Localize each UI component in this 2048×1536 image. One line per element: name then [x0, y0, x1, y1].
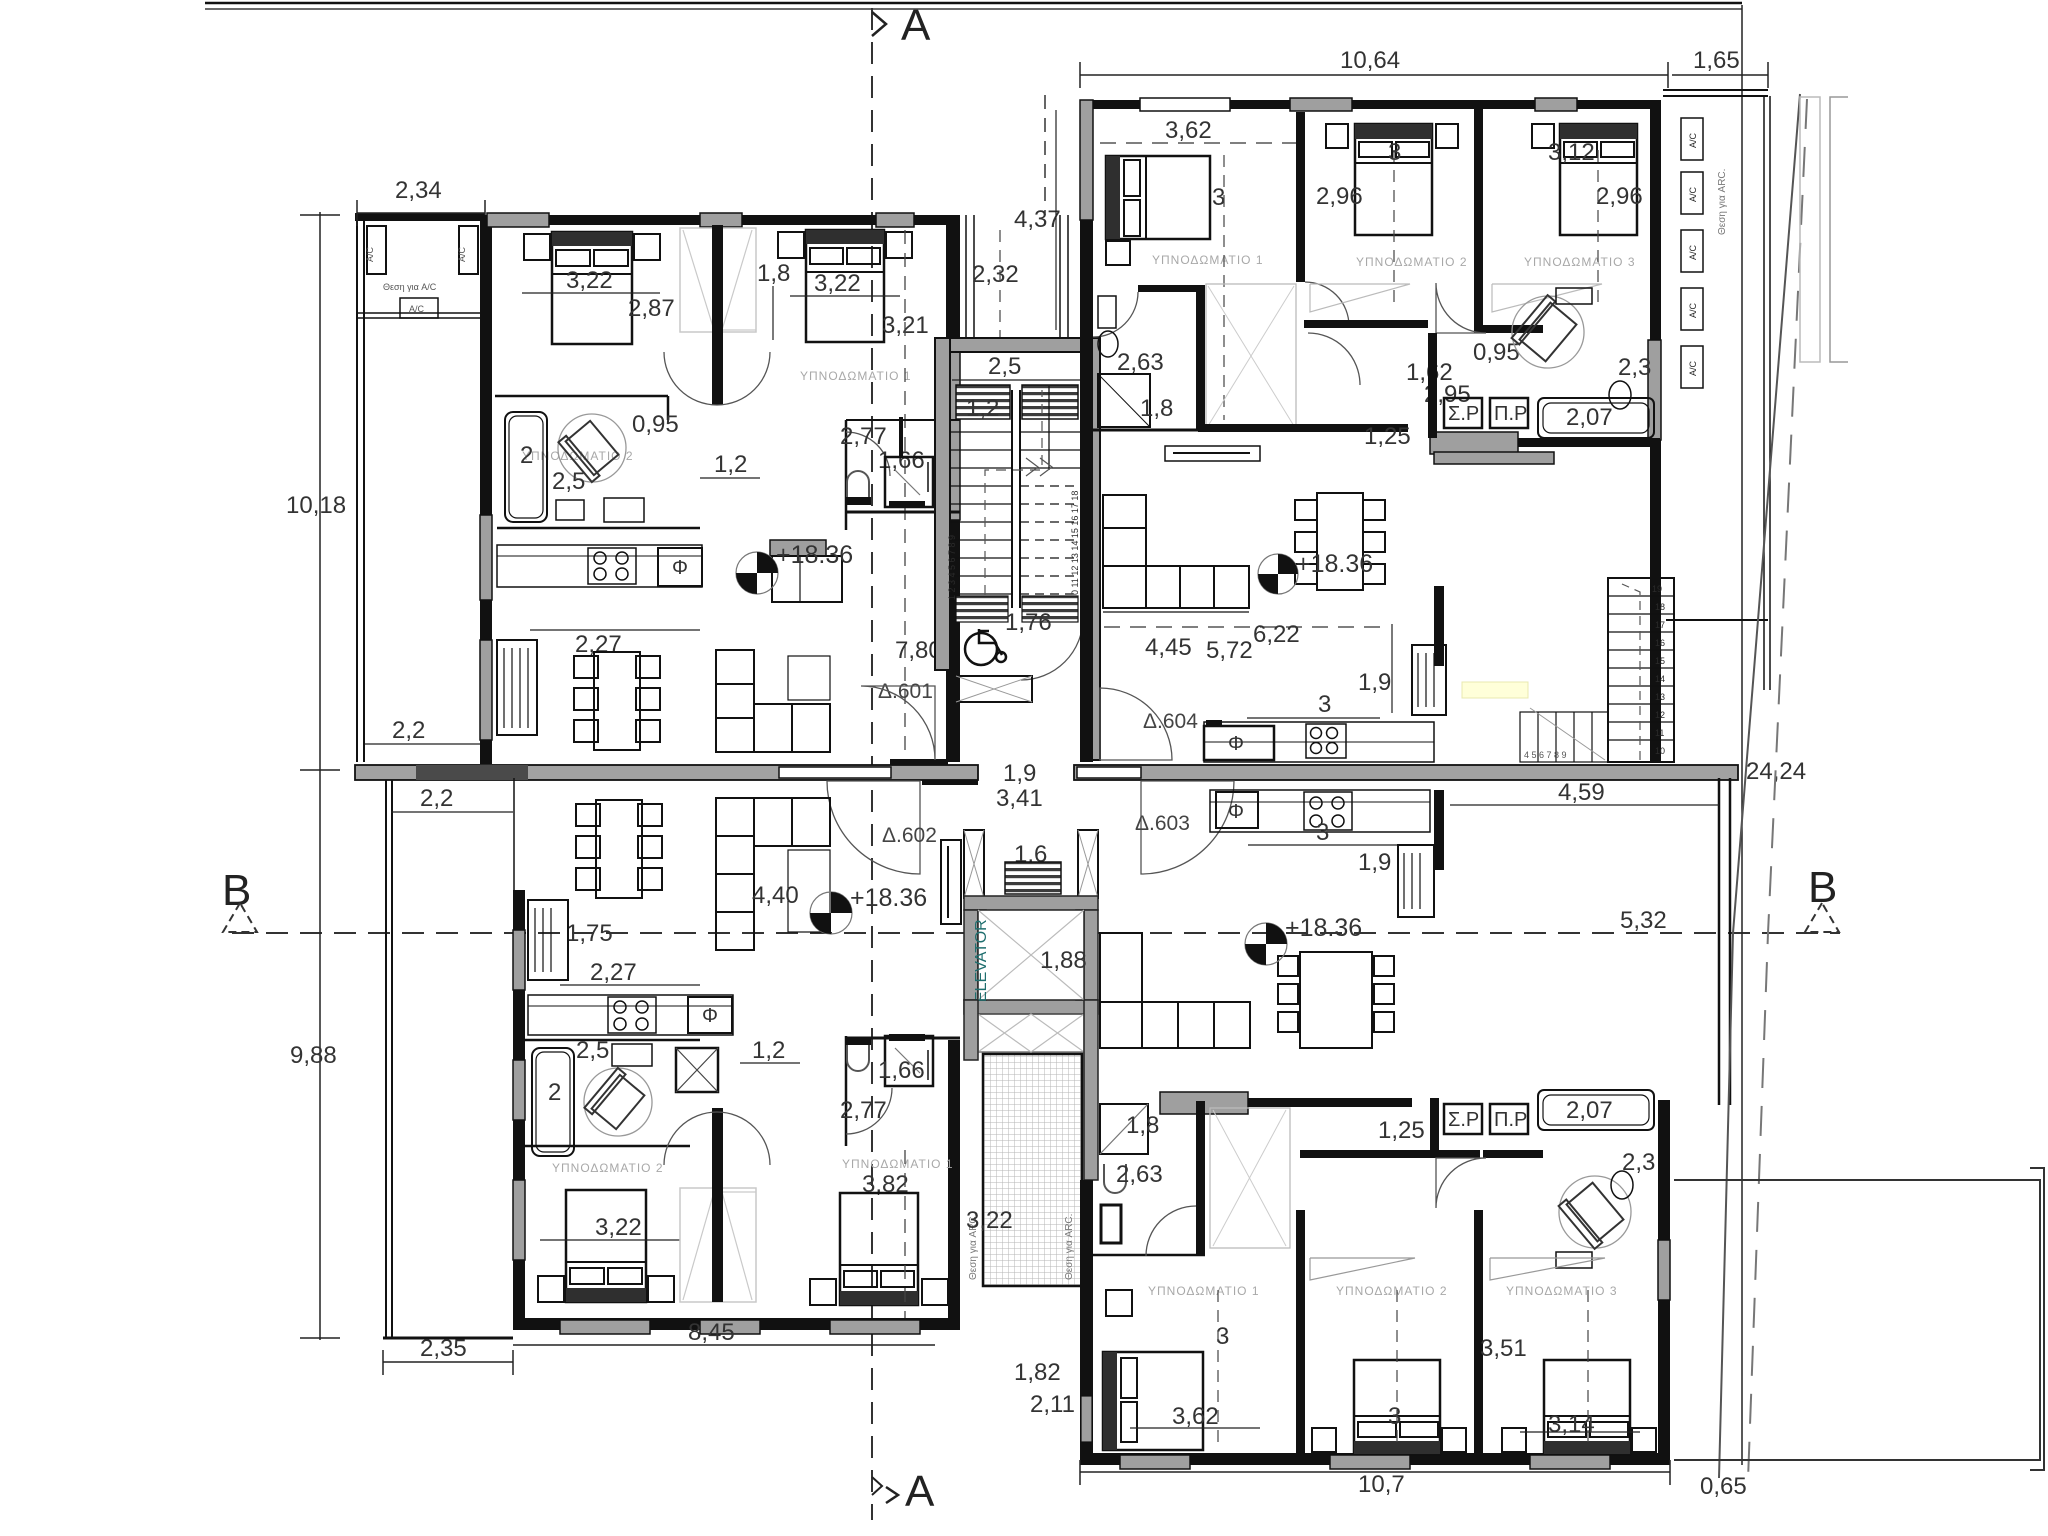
svg-text:3: 3	[1316, 819, 1329, 846]
svg-text:2,96: 2,96	[1596, 183, 1643, 210]
svg-text:+18.36: +18.36	[1296, 550, 1373, 578]
svg-text:ΥΠΝΟΔΩΜΑΤΙΟ 3: ΥΠΝΟΔΩΜΑΤΙΟ 3	[1506, 1284, 1618, 1298]
svg-text:2,11: 2,11	[1030, 1391, 1075, 1418]
svg-text:ΥΠΝΟΔΩΜΑΤΙΟ 2: ΥΠΝΟΔΩΜΑΤΙΟ 2	[1356, 255, 1468, 269]
svg-text:+18.36: +18.36	[850, 884, 927, 912]
svg-text:3,41: 3,41	[996, 785, 1043, 812]
svg-text:2,63: 2,63	[1116, 1161, 1163, 1188]
svg-text:4,59: 4,59	[1558, 779, 1605, 806]
svg-text:Θεση για A/C: Θεση για A/C	[383, 282, 437, 292]
svg-text:Δ.603: Δ.603	[1135, 812, 1190, 835]
svg-text:ΥΠΝΟΔΩΜΑΤΙΟ 2: ΥΠΝΟΔΩΜΑΤΙΟ 2	[552, 1161, 664, 1175]
svg-text:ΥΠΝΟΔΩΜΑΤΙΟ 3: ΥΠΝΟΔΩΜΑΤΙΟ 3	[1524, 255, 1636, 269]
svg-text:2,35: 2,35	[420, 1335, 467, 1362]
svg-text:2,96: 2,96	[1316, 183, 1363, 210]
svg-text:10,7: 10,7	[1358, 1471, 1405, 1498]
svg-text:3,22: 3,22	[814, 270, 861, 297]
svg-text:3: 3	[1388, 139, 1401, 166]
svg-text:2,87: 2,87	[628, 295, 675, 322]
svg-text:1,25: 1,25	[1378, 1117, 1425, 1144]
svg-text:ΥΠΝΟΔΩΜΑΤΙΟ 1: ΥΠΝΟΔΩΜΑΤΙΟ 1	[1148, 1284, 1260, 1298]
svg-text:4,45: 4,45	[1145, 634, 1192, 661]
svg-text:2,5: 2,5	[552, 468, 585, 495]
svg-text:3,12: 3,12	[1548, 139, 1595, 166]
svg-text:A/C: A/C	[457, 246, 467, 262]
svg-text:3,22: 3,22	[595, 1214, 642, 1241]
svg-text:1,75: 1,75	[566, 920, 613, 947]
svg-text:3: 3	[1318, 691, 1331, 718]
svg-text:A/C: A/C	[1688, 186, 1698, 202]
svg-text:17: 17	[1655, 620, 1665, 630]
svg-text:3: 3	[1212, 184, 1225, 211]
svg-text:Δ.602: Δ.602	[882, 824, 937, 847]
svg-text:1,65: 1,65	[1693, 47, 1740, 74]
svg-text:1,9: 1,9	[1003, 760, 1036, 787]
svg-text:16: 16	[1655, 638, 1665, 648]
svg-text:1,8: 1,8	[757, 260, 790, 287]
svg-text:A/C: A/C	[409, 304, 425, 314]
svg-text:+18.36: +18.36	[776, 541, 853, 569]
svg-text:3,62: 3,62	[1172, 1403, 1219, 1430]
svg-text:4,37: 4,37	[1014, 206, 1061, 233]
svg-text:3,62: 3,62	[1165, 117, 1212, 144]
svg-text:Δ.604: Δ.604	[1143, 710, 1198, 733]
svg-text:Θεση για ARC.: Θεση για ARC.	[1717, 169, 1728, 235]
svg-text:3,51: 3,51	[1480, 1335, 1527, 1362]
svg-text:2,77: 2,77	[840, 423, 887, 450]
svg-text:2,3: 2,3	[1622, 1149, 1655, 1176]
svg-text:A/C: A/C	[1688, 244, 1698, 260]
svg-text:0,95: 0,95	[632, 411, 679, 438]
svg-text:6,22: 6,22	[1253, 621, 1300, 648]
svg-text:A/C: A/C	[1688, 360, 1698, 376]
svg-text:1,8: 1,8	[1126, 1112, 1159, 1139]
svg-text:11: 11	[1655, 728, 1664, 738]
svg-text:2: 2	[548, 1079, 561, 1106]
svg-text:2,32: 2,32	[972, 261, 1019, 288]
svg-text:4,40: 4,40	[752, 882, 799, 909]
svg-text:1,2: 1,2	[966, 395, 999, 422]
svg-text:ELEVATOR: ELEVATOR	[973, 919, 990, 1002]
svg-text:Π.Ρ: Π.Ρ	[1494, 1109, 1527, 1131]
svg-text:Φ: Φ	[702, 1005, 718, 1027]
svg-text:0,65: 0,65	[1700, 1473, 1747, 1500]
svg-text:10 11 12 13 14 15 16 17 18: 10 11 12 13 14 15 16 17 18	[1070, 491, 1080, 600]
svg-text:9,88: 9,88	[290, 1042, 337, 1069]
svg-text:1,2: 1,2	[752, 1037, 785, 1064]
svg-text:1,82: 1,82	[1014, 1359, 1061, 1386]
svg-text:18: 18	[1655, 602, 1665, 612]
svg-text:A/C: A/C	[1688, 132, 1698, 148]
svg-text:Θεση για ARC.: Θεση για ARC.	[1064, 1214, 1075, 1280]
svg-text:ΥΠΝΟΔΩΜΑΤΙΟ 1: ΥΠΝΟΔΩΜΑΤΙΟ 1	[842, 1157, 954, 1171]
svg-text:10,64: 10,64	[1340, 47, 1400, 74]
svg-text:1,8: 1,8	[1140, 395, 1173, 422]
svg-text:12: 12	[1655, 710, 1665, 720]
svg-text:2,2: 2,2	[420, 785, 453, 812]
svg-text:1,9: 1,9	[1358, 669, 1391, 696]
svg-text:10,18: 10,18	[286, 492, 346, 519]
svg-text:1,88: 1,88	[1040, 947, 1087, 974]
svg-text:B: B	[1808, 863, 1837, 912]
svg-text:2,34: 2,34	[395, 177, 442, 204]
svg-text:2,07: 2,07	[1566, 404, 1613, 431]
svg-text:5,72: 5,72	[1206, 637, 1253, 664]
svg-text:2: 2	[520, 442, 533, 469]
svg-text:2,63: 2,63	[1117, 349, 1164, 376]
svg-text:A: A	[905, 1467, 935, 1516]
svg-text:ΥΠΝΟΔΩΜΑΤΙΟ 2: ΥΠΝΟΔΩΜΑΤΙΟ 2	[1336, 1284, 1448, 1298]
svg-text:+18.36: +18.36	[1285, 914, 1362, 942]
svg-text:2,5: 2,5	[576, 1037, 609, 1064]
svg-text:8,45: 8,45	[688, 1319, 735, 1346]
svg-text:Π.Ρ: Π.Ρ	[1494, 403, 1527, 425]
svg-text:5,32: 5,32	[1620, 907, 1667, 934]
svg-text:1,66: 1,66	[878, 1057, 925, 1084]
svg-text:Φ: Φ	[1228, 801, 1244, 823]
svg-text:19: 19	[1652, 584, 1662, 594]
svg-text:3,22: 3,22	[966, 1207, 1013, 1234]
svg-text:1,25: 1,25	[1364, 423, 1411, 450]
svg-text:1 2 3 4 5 6 7 8 9: 1 2 3 4 5 6 7 8 9	[947, 535, 957, 600]
svg-text:Φ: Φ	[672, 557, 688, 579]
svg-text:A/C: A/C	[365, 246, 375, 262]
svg-text:4 5 6 7 8 9: 4 5 6 7 8 9	[1524, 750, 1567, 760]
svg-text:2,27: 2,27	[590, 959, 637, 986]
svg-text:3: 3	[1388, 1403, 1401, 1430]
svg-text:14: 14	[1655, 674, 1665, 684]
svg-text:1,76: 1,76	[1005, 609, 1052, 636]
svg-text:Φ: Φ	[1228, 733, 1244, 755]
svg-text:2,2: 2,2	[392, 717, 425, 744]
svg-text:Σ.Ρ: Σ.Ρ	[1448, 1109, 1479, 1131]
svg-text:ΥΠΝΟΔΩΜΑΤΙΟ 1: ΥΠΝΟΔΩΜΑΤΙΟ 1	[800, 369, 912, 383]
svg-text:2,5: 2,5	[988, 353, 1021, 380]
svg-text:1,9: 1,9	[1358, 849, 1391, 876]
svg-text:2,27: 2,27	[575, 631, 622, 658]
svg-text:2,3: 2,3	[1618, 354, 1651, 381]
svg-text:10: 10	[1655, 746, 1665, 756]
svg-text:A/C: A/C	[1688, 302, 1698, 318]
svg-text:3,22: 3,22	[566, 267, 613, 294]
svg-text:A: A	[901, 1, 931, 50]
svg-text:0,95: 0,95	[1473, 339, 1520, 366]
svg-text:ΥΠΝΟΔΩΜΑΤΙΟ 1: ΥΠΝΟΔΩΜΑΤΙΟ 1	[1152, 253, 1264, 267]
svg-text:1,2: 1,2	[714, 451, 747, 478]
svg-text:15: 15	[1655, 656, 1665, 666]
svg-text:Δ.601: Δ.601	[878, 680, 933, 703]
svg-text:2,07: 2,07	[1566, 1097, 1613, 1124]
svg-text:Σ.Ρ: Σ.Ρ	[1448, 403, 1479, 425]
svg-text:13: 13	[1655, 692, 1665, 702]
